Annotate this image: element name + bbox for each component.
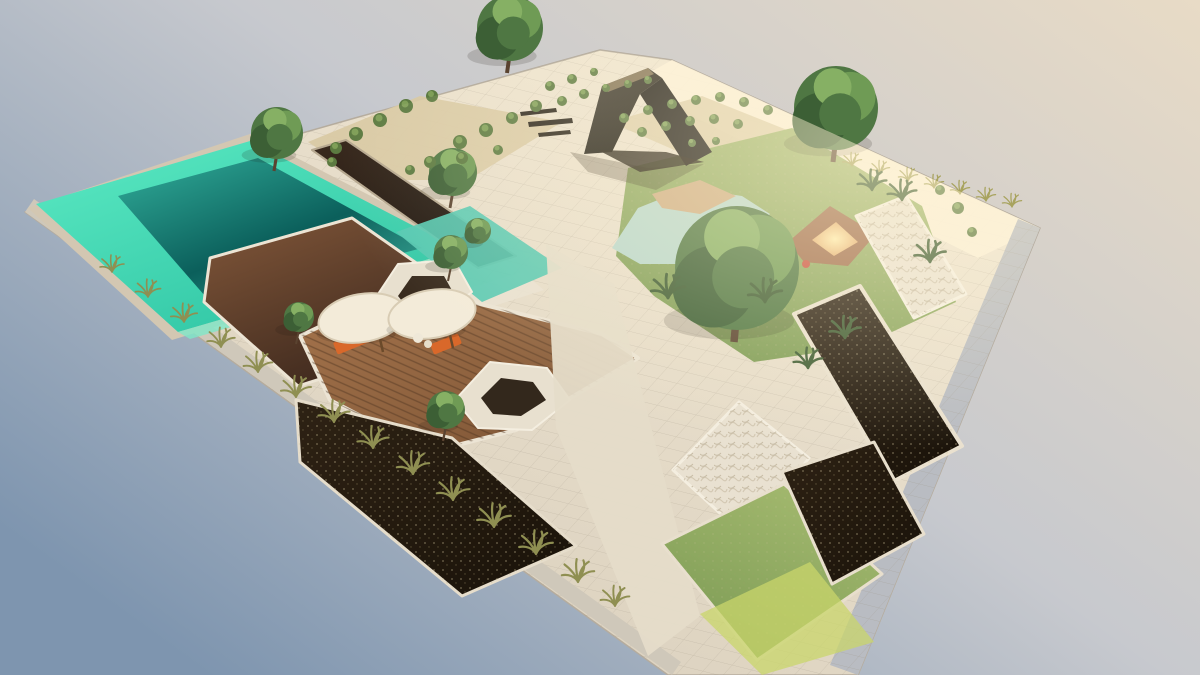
tree-canopy (819, 93, 861, 135)
landscape-garden-render (0, 0, 1200, 675)
shrub-highlight (428, 91, 434, 97)
render-stage (0, 0, 1200, 675)
tree-canopy (497, 16, 530, 49)
